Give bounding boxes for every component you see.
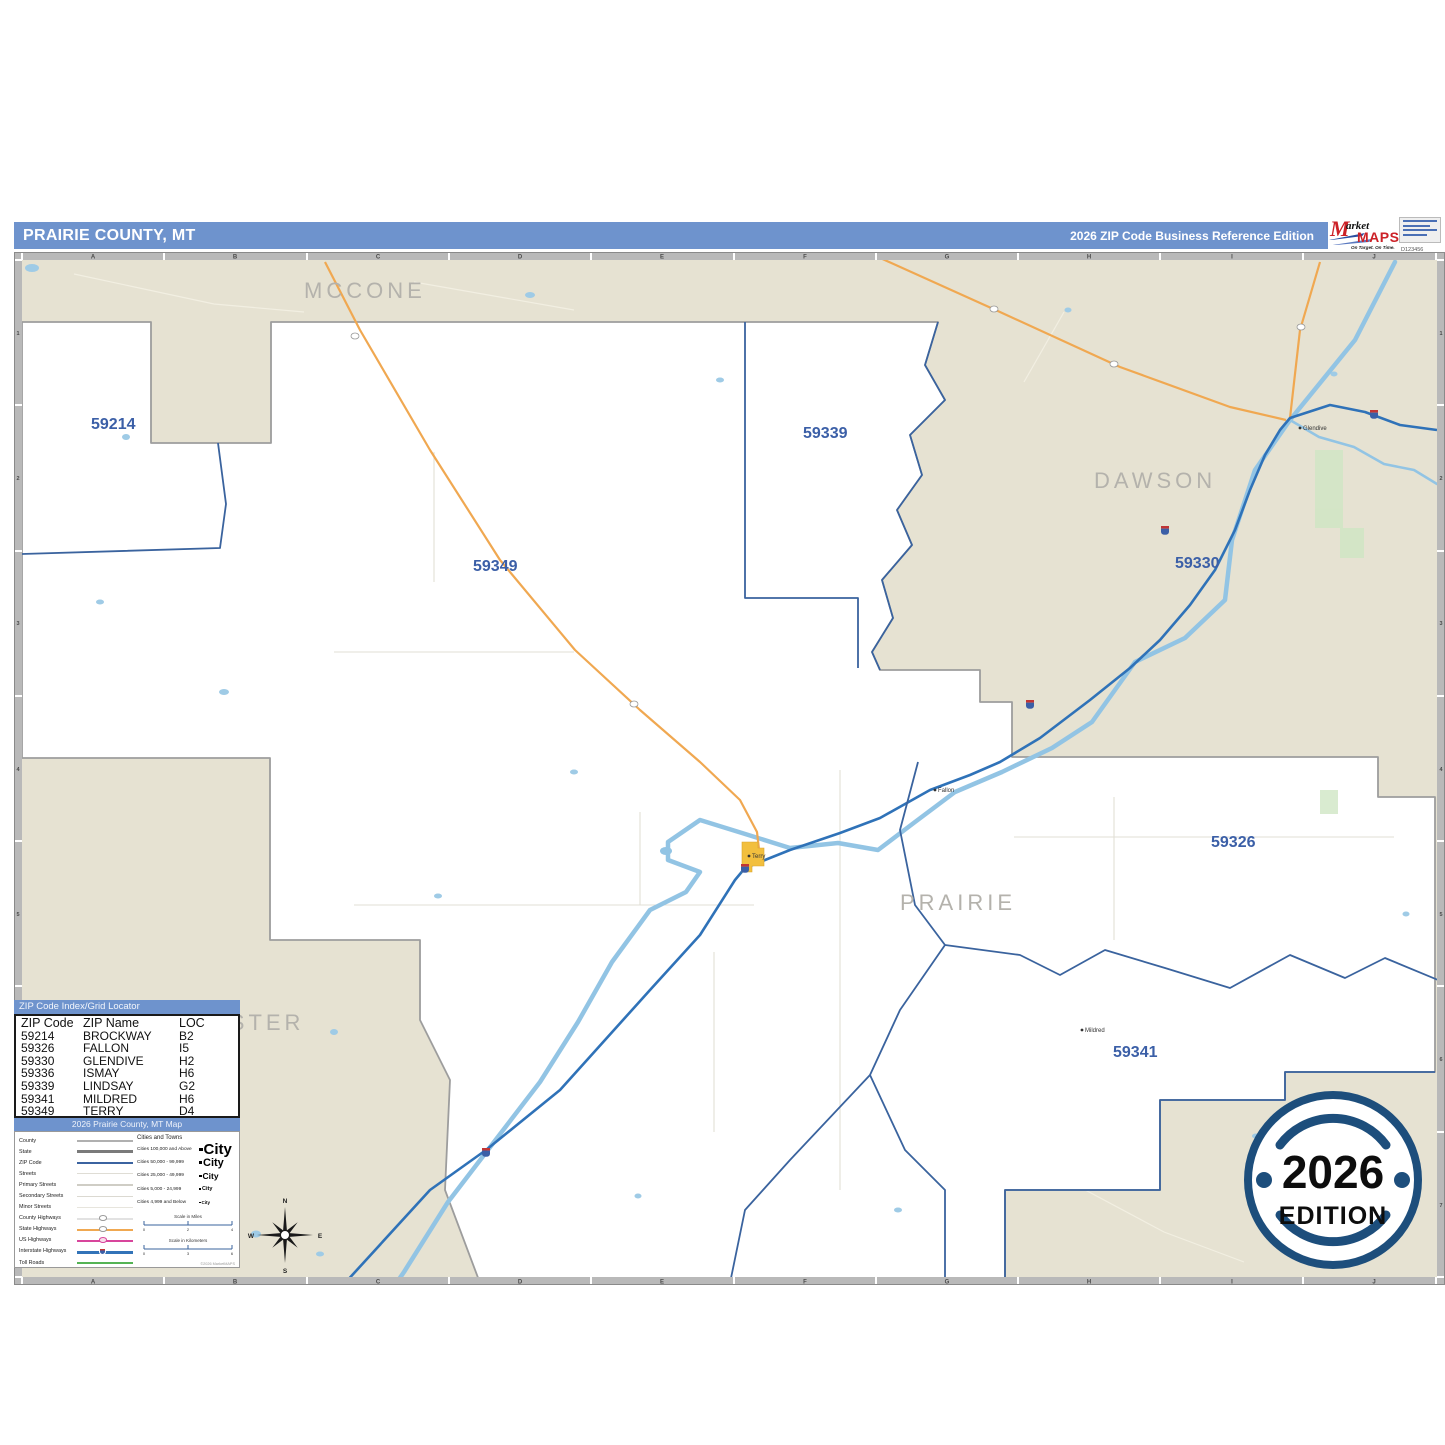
legend-item: Interstate Highways [19,1248,77,1254]
city-sample: City [202,1200,211,1205]
zip-label-59339: 59339 [803,425,848,442]
legend-item: State [19,1149,77,1155]
town-label-mildred: Mildred [1085,1028,1105,1034]
legend-item: Toll Roads [19,1260,77,1266]
logo-tagline: On Target. On Time. [1351,245,1395,250]
city-class-label: Cities 25,000 - 49,999 [137,1173,199,1178]
tick: 2 [187,1227,190,1232]
cell-zip: 59339 [21,1080,83,1093]
legend-item: State Highways [19,1226,77,1232]
grid-col-label: B [233,255,238,261]
tick: 0 [143,1227,146,1232]
cell-name: FALLON [83,1042,179,1055]
grid-row-label: 3 [16,621,19,627]
grid-col-label: H [1087,255,1091,261]
legend-line-types: County State ZIP Code Streets Primary St… [19,1135,135,1268]
grid-col-label: D [518,255,523,261]
tick: 0 [143,1251,146,1256]
grid-col-label: J [1372,255,1375,261]
county-label-dawson: DAWSON [1094,468,1216,493]
zip-label-59330: 59330 [1175,555,1220,572]
scale-bars: Scale in Miles 0 2 4 Scale in Kilometers… [140,1213,236,1261]
legend-title: 2026 Prairie County, MT Map [14,1118,240,1131]
city-sample: City [203,1171,219,1181]
tick: 6 [231,1251,234,1256]
city-sample: City [204,1141,232,1158]
scale-km-title: Scale in Kilometers [169,1238,208,1243]
city-dot-icon [199,1148,203,1152]
cell-loc: D4 [179,1105,219,1118]
page: PRAIRIE COUNTY, MT 2026 ZIP Code Busines… [0,0,1445,1445]
grid-row-label: 2 [16,476,19,482]
legend-item: County Highways [19,1215,77,1221]
header-bar: PRAIRIE COUNTY, MT 2026 ZIP Code Busines… [14,222,1328,249]
logo-maps-text: MAPS [1357,229,1399,245]
tick: 4 [231,1227,234,1232]
grid-row-label: 1 [1439,331,1442,337]
legend-item: County [19,1138,77,1144]
cell-loc: I5 [179,1042,219,1055]
col-zip-name: ZIP Name [83,1017,179,1030]
grid-col-label: F [803,255,807,261]
zip-label-59214: 59214 [91,416,136,433]
city-dot-icon [199,1188,201,1190]
scale-miles: Scale in Miles 0 2 4 [140,1213,236,1232]
town-label-glendive: Glendive [1303,426,1327,432]
city-sample: City [202,1186,212,1192]
grid-col-label: G [945,255,950,261]
edition-badge: 2026 EDITION [1243,1090,1423,1270]
grid-row-label: 3 [1439,621,1442,627]
legend-item: Secondary Streets [19,1193,77,1199]
grid-col-label: C [376,255,381,261]
zip-index-title: ZIP Code Index/Grid Locator [14,1000,240,1014]
logo-contact-box [1399,217,1441,243]
zip-label-59349: 59349 [473,558,518,575]
cell-zip: 59326 [21,1042,83,1055]
compass-s: S [283,1268,288,1275]
city-class-label: Cities 50,000 - 99,999 [137,1160,199,1165]
zip-label-59341: 59341 [1113,1044,1158,1061]
city-sample: City [203,1157,224,1169]
legend-item: US Highways [19,1237,77,1243]
city-dot-icon [199,1202,201,1204]
town-label-fallon: Fallon [938,788,954,794]
compass-n: N [283,1198,288,1205]
grid-row-label: 7 [1439,1203,1442,1209]
col-zip-code: ZIP Code [21,1017,83,1030]
page-title: PRAIRIE COUNTY, MT [23,227,196,245]
county-label-prairie: PRAIRIE [900,890,1016,915]
grid-col-label: A [91,255,96,261]
zip-index-header-row: ZIP Code ZIP Name LOC [21,1017,238,1030]
cell-zip: 59349 [21,1105,83,1118]
scale-miles-title: Scale in Miles [174,1214,203,1219]
cell-name: LINDSAY [83,1080,179,1093]
table-row: 59339 LINDSAY G2 [21,1080,238,1093]
compass-w: W [248,1233,255,1240]
grid-row-label: 6 [1439,1057,1442,1063]
legend-item: Primary Streets [19,1182,77,1188]
town-label-terry: Terry [752,854,765,860]
col-loc: LOC [179,1017,219,1030]
tick: 3 [187,1251,190,1256]
city-class-label: Cities 100,000 and Above [137,1147,199,1152]
grid-row-label: 1 [16,331,19,337]
zip-label-59326: 59326 [1211,834,1256,851]
legend-item: ZIP Code [19,1160,77,1166]
edition-badge-icon: 2026 EDITION [1243,1090,1423,1270]
compass-e: E [318,1233,323,1240]
legend-item: Minor Streets [19,1204,77,1210]
cell-name: TERRY [83,1105,179,1118]
scale-km: Scale in Kilometers 0 3 6 [140,1237,236,1256]
grid-row-label: 2 [1439,476,1442,482]
cell-loc: G2 [179,1080,219,1093]
grid-col-label: E [660,255,664,261]
grid-row-label: 5 [16,912,19,918]
city-dot-icon [199,1161,202,1164]
badge-edition: EDITION [1279,1202,1387,1230]
legend-cities: Cities and Towns Cities 100,000 and Abov… [137,1135,237,1209]
edition-subtitle: 2026 ZIP Code Business Reference Edition [1070,229,1314,243]
grid-row-label: 5 [1439,912,1442,918]
interstate-shield-icon [99,1248,106,1255]
cities-title: Cities and Towns [137,1135,237,1141]
badge-year: 2026 [1282,1146,1384,1198]
city-class-label: Cities 4,999 and Below [137,1200,199,1205]
map-legend: County State ZIP Code Streets Primary St… [14,1131,240,1268]
legend-copyright: ©2026 MarketMAPS [200,1262,235,1266]
county-label-mccone: MCCONE [304,278,426,303]
table-row: 59326 FALLON I5 [21,1042,238,1055]
table-row: 59349 TERRY D4 [21,1105,238,1118]
zip-index-table: ZIP Code ZIP Name LOC 59214 BROCKWAY B2 … [14,1014,240,1118]
city-class-label: Cities 5,000 - 24,999 [137,1187,199,1192]
city-dot-icon [199,1175,202,1178]
legend-item: Streets [19,1171,77,1177]
